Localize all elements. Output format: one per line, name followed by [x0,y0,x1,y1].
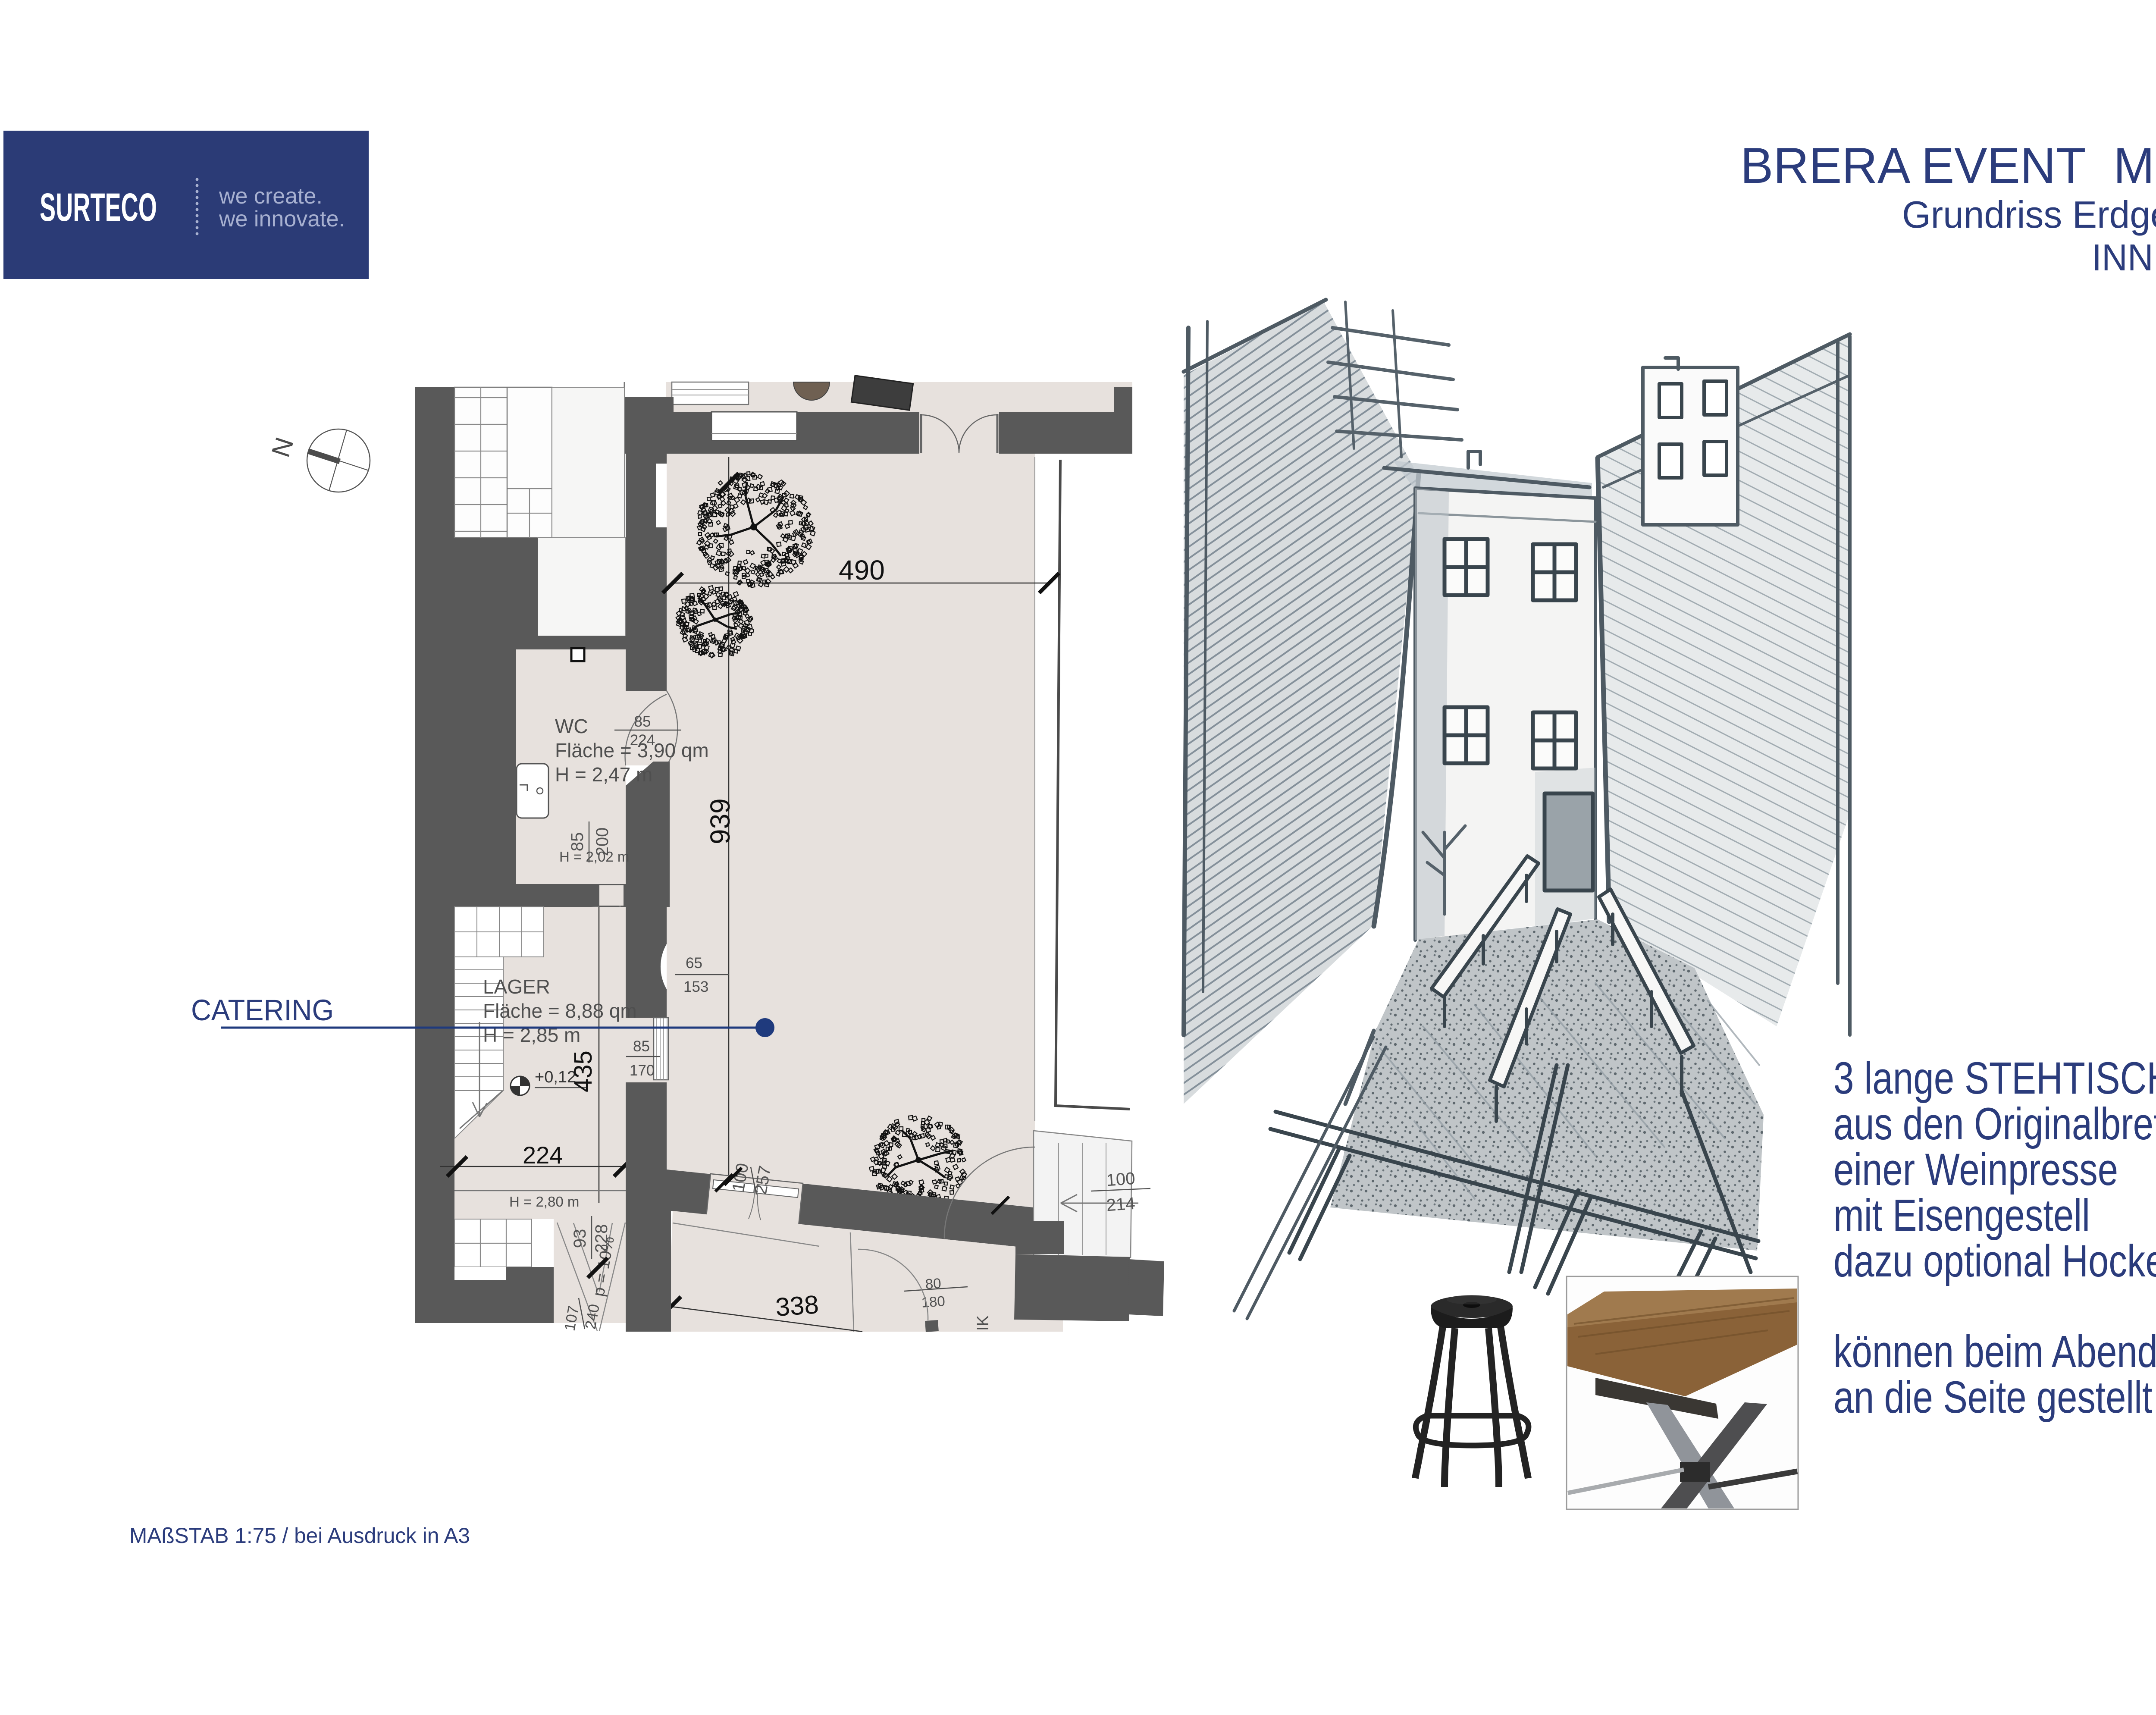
svg-text:BRERA EVENT Mailand: BRERA EVENT Mailand [1740,137,2156,194]
svg-text:170: 170 [630,1062,655,1079]
svg-text:224: 224 [523,1141,563,1169]
svg-text:können beim Abendevent: können beim Abendevent [1833,1326,2156,1377]
svg-text:H = 2,80 m: H = 2,80 m [509,1194,579,1210]
svg-text:228: 228 [592,1224,611,1253]
svg-text:MAßSTAB 1:75 / bei Ausdruck i: MAßSTAB 1:75 / bei Ausdruck in A3 [129,1524,470,1548]
svg-text:H = 2,02 m: H = 2,02 m [559,849,629,865]
svg-text:224: 224 [630,732,655,749]
svg-text:3 lange STEHTISCHE: 3 lange STEHTISCHE [1833,1053,2156,1104]
svg-text:einer Weinpresse: einer Weinpresse [1833,1144,2118,1195]
svg-text:WC: WC [555,715,588,737]
svg-text:85: 85 [633,1038,650,1055]
svg-text:SURTECO: SURTECO [40,185,157,229]
svg-text:mit Eisengestell: mit Eisengestell [1833,1190,2090,1241]
svg-text:H = 2,47 m: H = 2,47 m [555,763,652,786]
svg-text:dazu optional Hocker: dazu optional Hocker [1833,1236,2156,1286]
svg-text:aus den Originalbrettern: aus den Originalbrettern [1833,1099,2156,1149]
svg-text:we create.: we create. [219,184,323,209]
svg-text:85: 85 [634,713,651,730]
svg-text:we innovate.: we innovate. [219,207,345,232]
svg-text:939: 939 [705,798,736,844]
svg-text:IK: IK [974,1315,992,1331]
svg-text:65: 65 [686,955,702,972]
svg-text:100: 100 [1106,1169,1136,1190]
svg-text:435: 435 [569,1050,597,1092]
svg-text:an die Seite gestellt werden: an die Seite gestellt werden [1833,1372,2156,1423]
svg-text:Fläche = 8,88 qm: Fläche = 8,88 qm [483,1000,637,1022]
svg-text:490: 490 [839,555,885,586]
svg-text:Grundriss Erdgeschoss: Grundriss Erdgeschoss [1902,193,2156,236]
svg-text:INNENHOF: INNENHOF [2092,237,2156,279]
svg-text:214: 214 [1106,1194,1136,1215]
svg-text:CATERING: CATERING [191,994,334,1027]
svg-text:93: 93 [570,1229,589,1248]
svg-text:LAGER: LAGER [483,975,550,998]
svg-text:153: 153 [683,978,708,995]
svg-text:338: 338 [774,1290,820,1322]
